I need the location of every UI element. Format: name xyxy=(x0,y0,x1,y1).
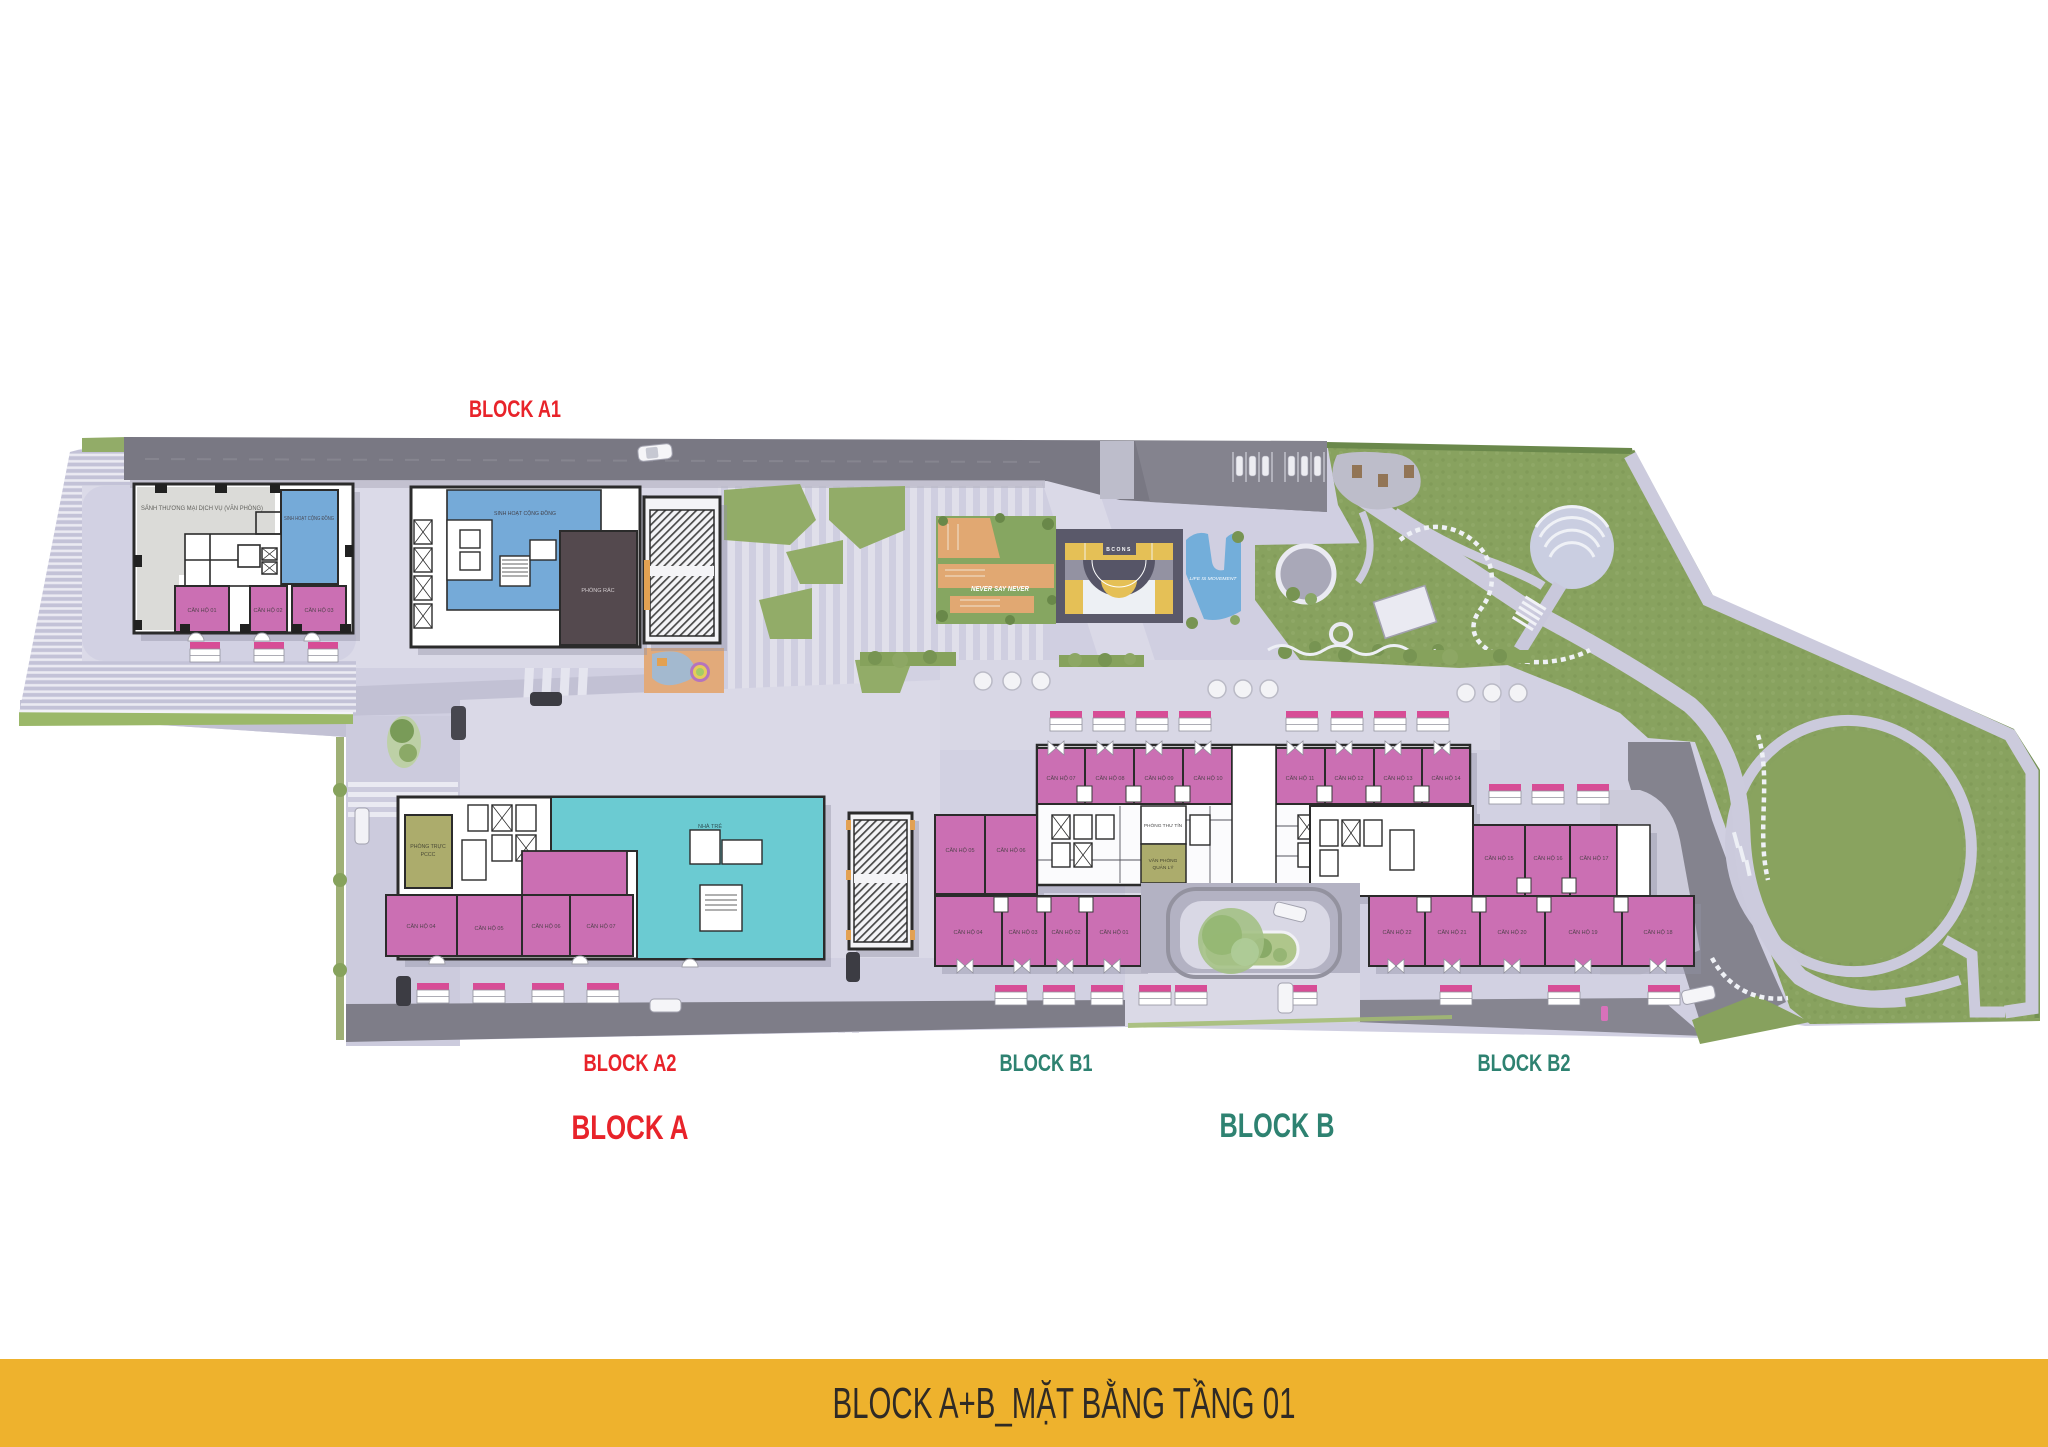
svg-text:BLOCK A+B_MẶT BẰNG TẦNG 01: BLOCK A+B_MẶT BẰNG TẦNG 01 xyxy=(833,1378,1296,1428)
svg-text:BLOCK B2: BLOCK B2 xyxy=(1478,1050,1571,1077)
svg-text:BLOCK A: BLOCK A xyxy=(572,1109,689,1147)
svg-text:BLOCK A2: BLOCK A2 xyxy=(584,1050,677,1077)
svg-text:BLOCK B: BLOCK B xyxy=(1220,1107,1335,1145)
svg-text:BLOCK A1: BLOCK A1 xyxy=(469,396,561,423)
svg-text:BLOCK B1: BLOCK B1 xyxy=(1000,1050,1093,1077)
